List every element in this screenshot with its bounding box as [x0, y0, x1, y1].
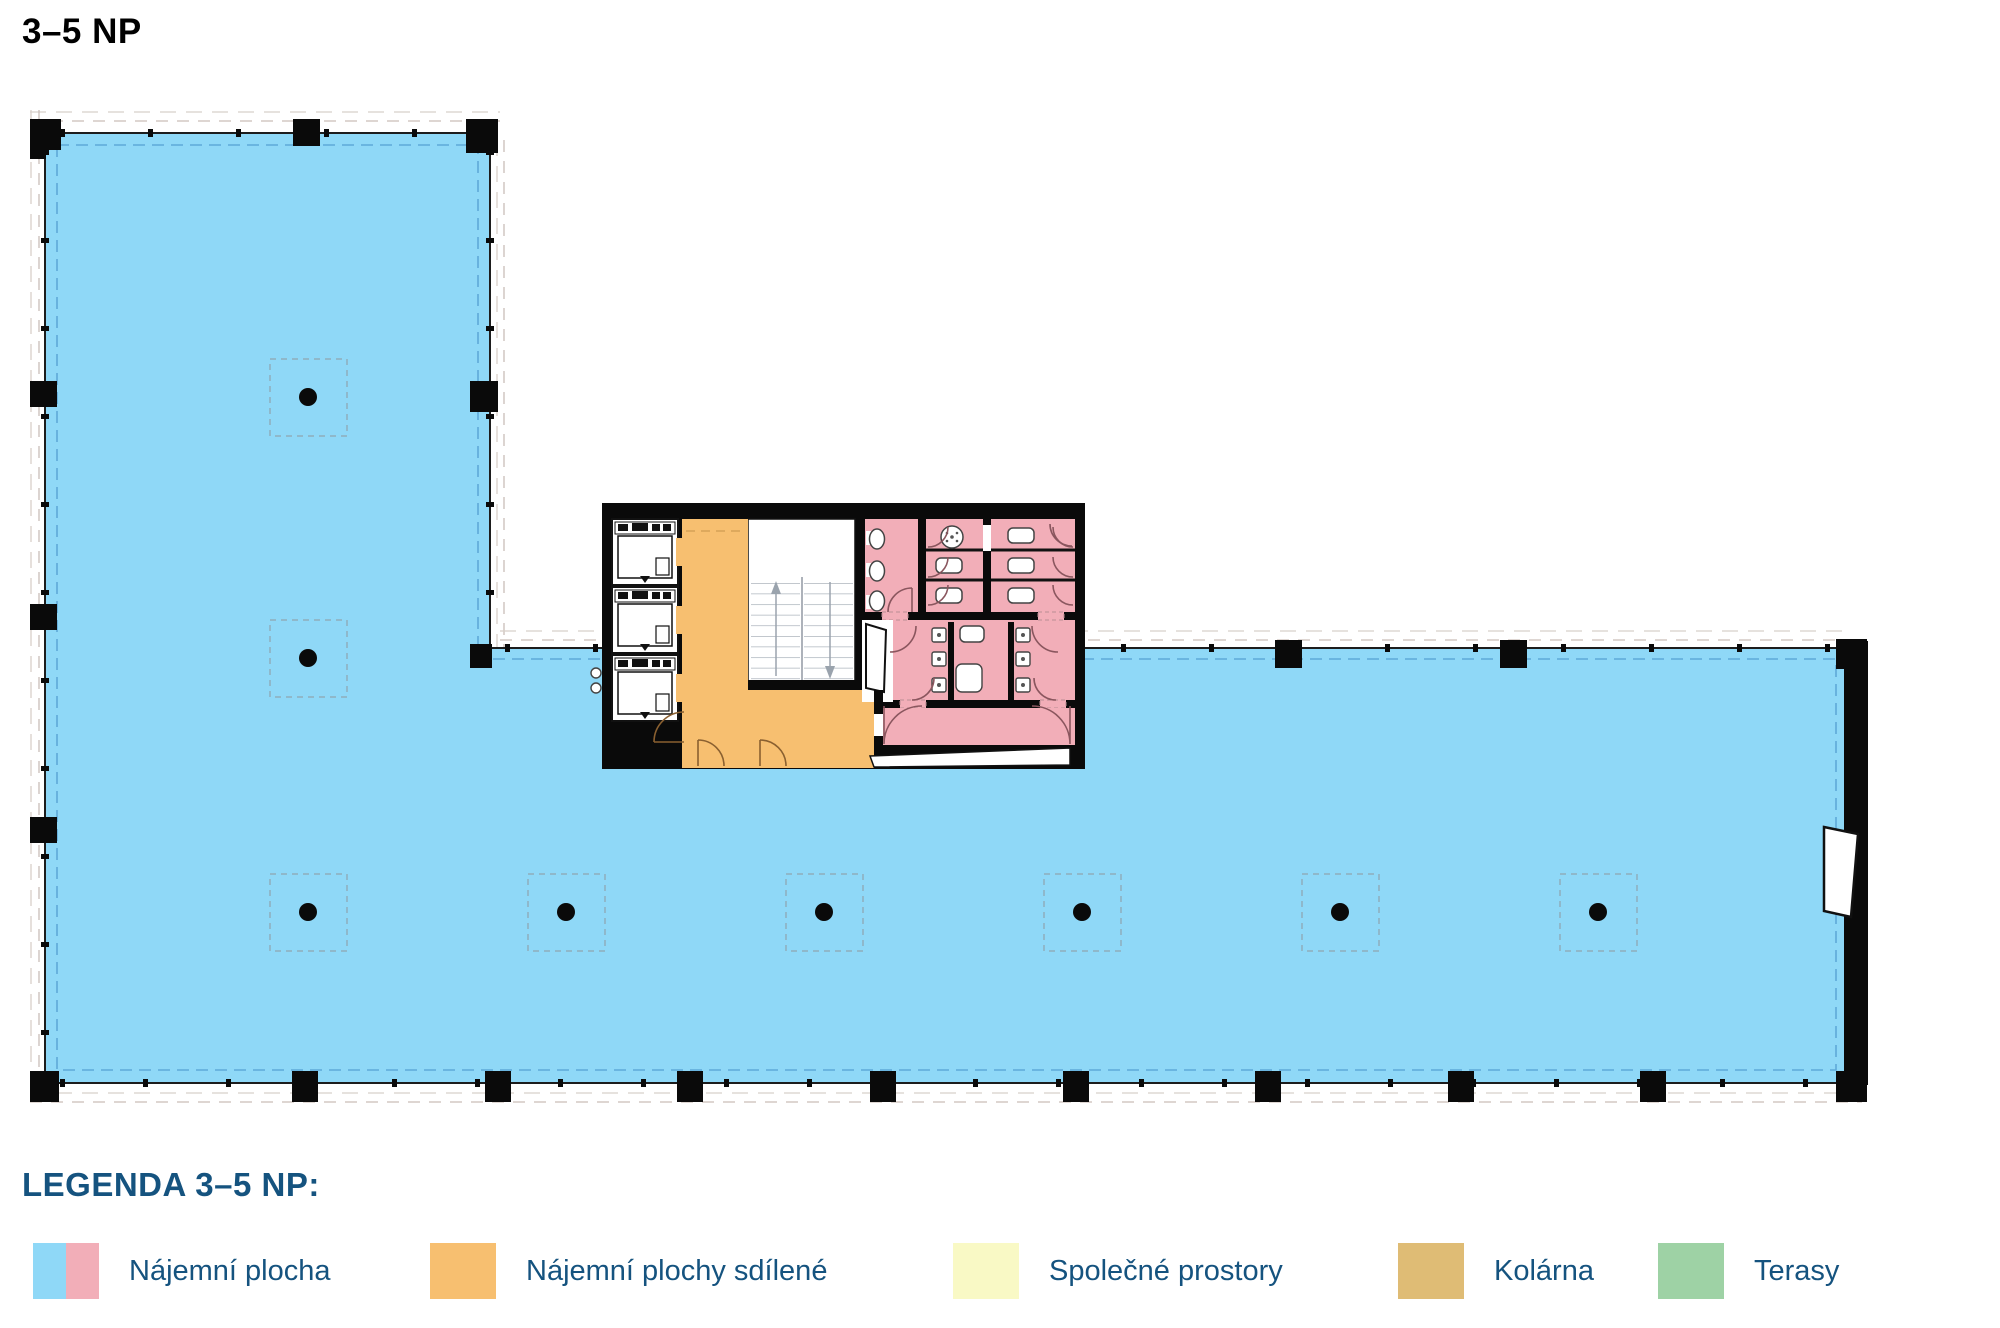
elevator-2 — [612, 587, 682, 653]
legend-label-shared: Nájemní plochy sdílené — [526, 1255, 827, 1288]
building-core — [591, 503, 1085, 769]
legend-swatch-rental — [33, 1243, 99, 1299]
swatch-bike-tan — [1398, 1243, 1464, 1299]
sanitary-block — [862, 519, 1075, 769]
swatch-common-yellow — [953, 1243, 1019, 1299]
legend-swatch-common — [953, 1243, 1019, 1299]
legend-item-bike-room: Kolárna — [1398, 1243, 1594, 1299]
floor-plan — [0, 0, 2000, 1323]
staircase — [748, 519, 855, 684]
legend-swatch-terraces — [1658, 1243, 1724, 1299]
east-wall-niche — [1824, 827, 1858, 917]
legend-label-terraces: Terasy — [1754, 1255, 1839, 1288]
swatch-shared-orange — [430, 1243, 496, 1299]
legend-label-bike-room: Kolárna — [1494, 1255, 1594, 1288]
shower — [941, 526, 963, 548]
legend-label-rental: Nájemní plocha — [129, 1255, 331, 1288]
legend-swatch-bike-room — [1398, 1243, 1464, 1299]
legend-label-common: Společné prostory — [1049, 1255, 1283, 1288]
legend-item-terraces: Terasy — [1658, 1243, 1839, 1299]
door-leaf — [866, 624, 886, 692]
elevator-3 — [612, 655, 682, 721]
legend-item-common: Společné prostory — [953, 1243, 1283, 1299]
swatch-rental-pink — [66, 1243, 99, 1299]
elevator-1 — [612, 519, 682, 585]
legend-item-shared: Nájemní plochy sdílené — [430, 1243, 827, 1299]
legend-swatch-shared — [430, 1243, 496, 1299]
legend-item-rental: Nájemní plocha — [33, 1243, 331, 1299]
urinals — [866, 529, 885, 611]
legend-heading: LEGENDA 3–5 NP: — [22, 1166, 320, 1204]
swatch-rental-blue — [33, 1243, 66, 1299]
swatch-terrace-green — [1658, 1243, 1724, 1299]
floor-plan-svg — [0, 0, 2000, 1323]
